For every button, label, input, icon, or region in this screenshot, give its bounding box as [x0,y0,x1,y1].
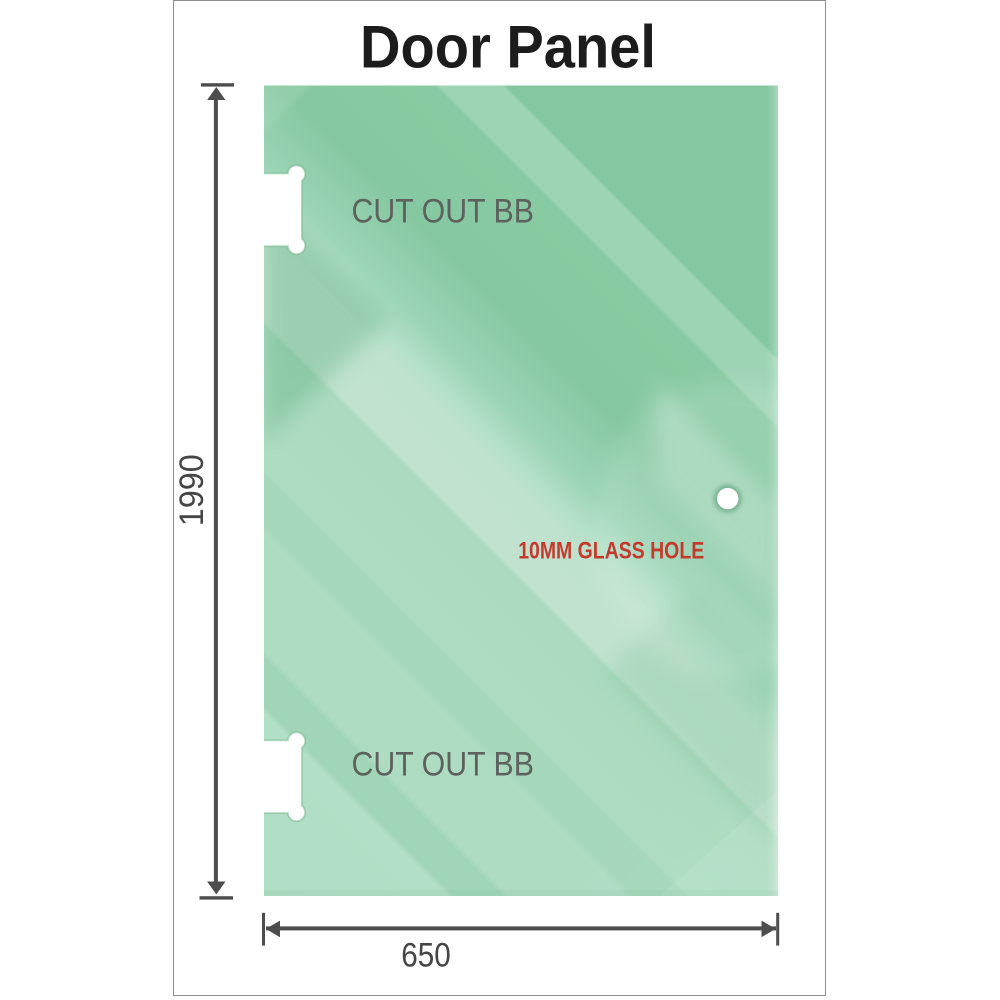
svg-text:CUT OUT BB: CUT OUT BB [352,193,535,231]
svg-text:10MM GLASS HOLE: 10MM GLASS HOLE [518,538,704,565]
svg-text:1990: 1990 [173,454,211,526]
svg-text:CUT OUT BB: CUT OUT BB [352,746,535,784]
svg-text:650: 650 [401,937,451,975]
svg-text:Door Panel: Door Panel [360,14,656,81]
